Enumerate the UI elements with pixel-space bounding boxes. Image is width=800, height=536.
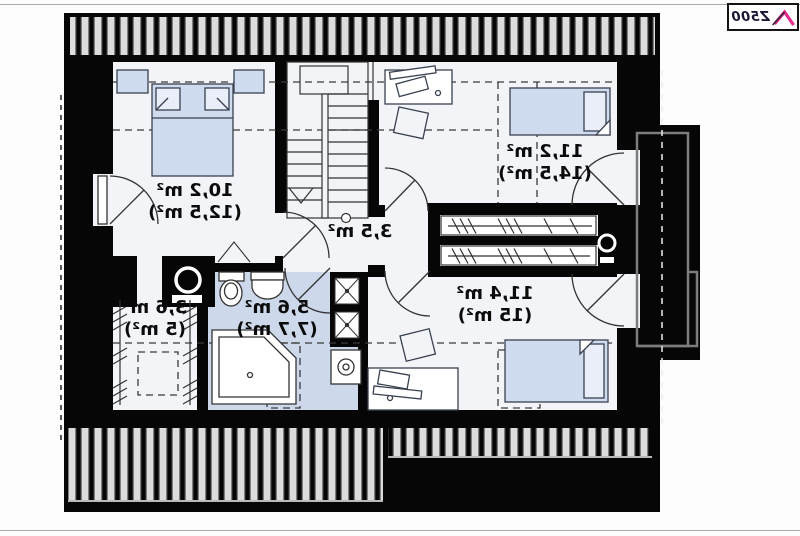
room-area-total: (7,7 m²): [218, 319, 336, 341]
room-area: 5,6 m²: [218, 297, 336, 319]
room-area-total: (5 m²): [112, 319, 198, 341]
room-area: 11,4 m²: [420, 283, 570, 305]
room-label-bathroom: 5,6 m² (7,7 m²): [218, 297, 336, 340]
roof-icon: [771, 8, 795, 27]
flue-bar-right: [600, 257, 614, 263]
room-area: 11,2 m²: [470, 141, 620, 163]
room-label-bedroom-left: 10,2 m² (12,5 m²): [120, 180, 270, 223]
z500-logo-inner: Z500: [731, 8, 796, 27]
room-area: 3,6 m²: [112, 297, 198, 319]
roof-hatch-bottom-right: [388, 428, 652, 456]
room-label-bedroom-lower-right: 11,4 m² (15 m²): [420, 283, 570, 326]
pillow: [584, 344, 604, 398]
room-area-total: (12,5 m²): [120, 202, 270, 224]
room-label-hall: 3,5 m²: [305, 221, 415, 243]
washing-machine: [331, 350, 361, 384]
room-area: 10,2 m²: [120, 180, 270, 202]
room-label-bedroom-upper-right: 11,2 m² (14,5 m²): [470, 141, 620, 184]
pillow: [584, 92, 606, 131]
logo-text: Z500: [731, 10, 770, 25]
roof-hatch-bottom-left: [68, 428, 383, 500]
room-area: 3,5 m²: [305, 221, 415, 243]
nightstand-left: [117, 70, 148, 93]
desk-item: [388, 396, 393, 401]
room-label-wardrobe: 3,6 m² (5 m²): [112, 297, 198, 340]
floor-plan-drawing: [0, 0, 800, 536]
floor-plan-page: 10,2 m² (12,5 m²) 11,2 m² (14,5 m²) 3,5 …: [0, 0, 800, 536]
roof-hatch-top: [70, 17, 655, 55]
room-area-total: (15 m²): [420, 305, 570, 327]
desk-item: [436, 91, 441, 96]
chair: [394, 107, 429, 139]
z500-logo: Z500: [727, 3, 799, 31]
sink-back: [251, 272, 284, 280]
room-area-total: (14,5 m²): [470, 163, 620, 185]
nightstand-right: [234, 70, 264, 93]
